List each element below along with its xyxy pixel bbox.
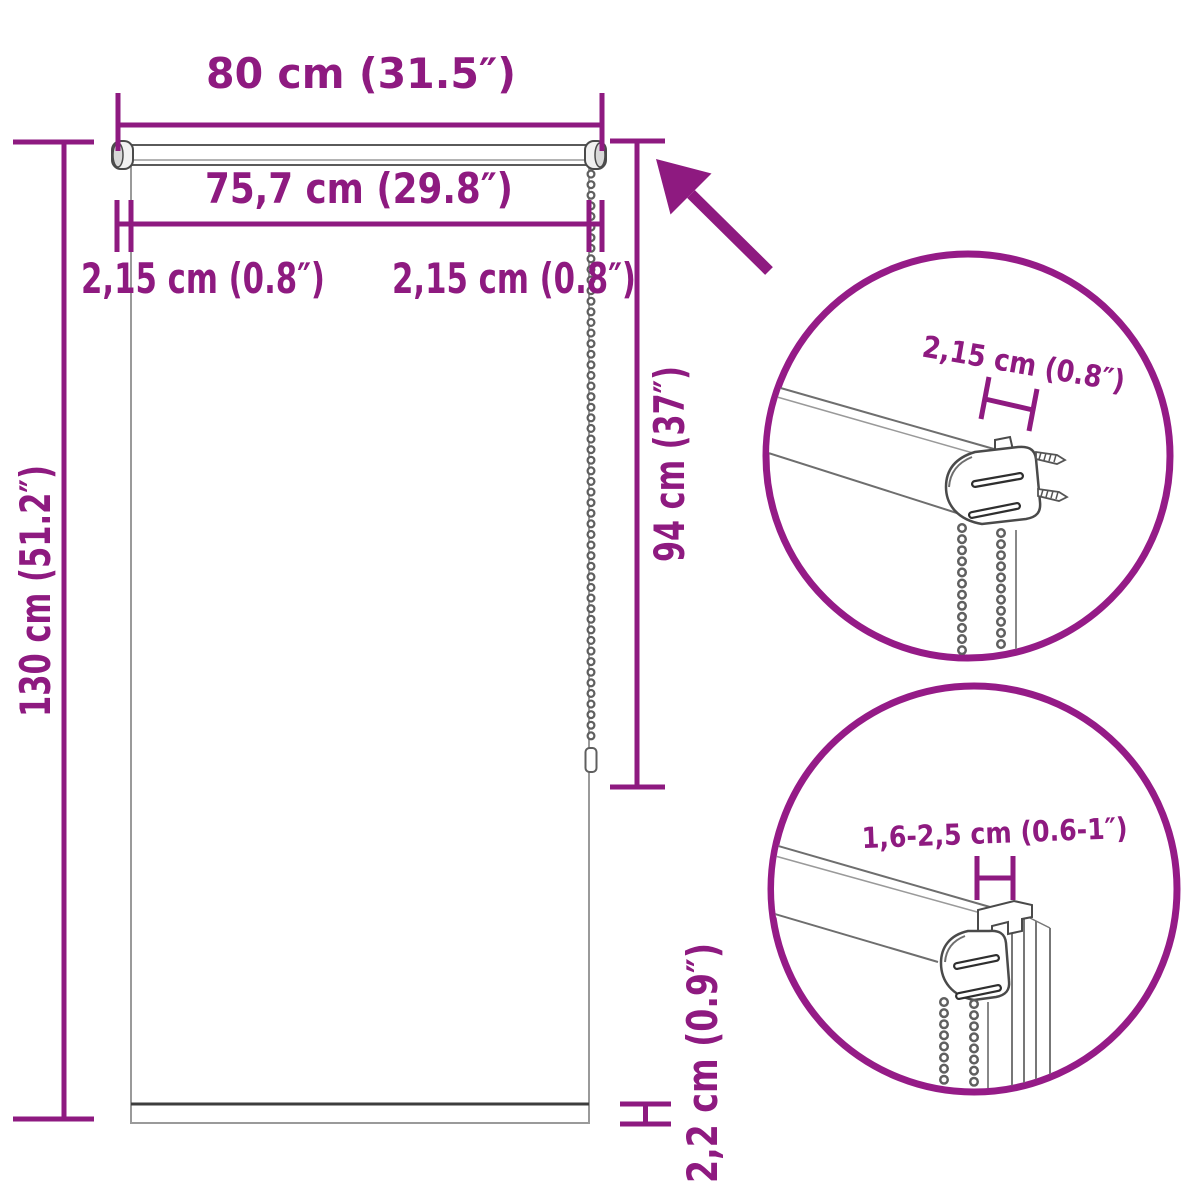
label-bottom-bar: 2,2 cm (0.9″) <box>678 943 727 1183</box>
label-height-total: 130 cm (51.2″) <box>11 465 60 717</box>
diagram-svg: 80 cm (31.5″) 75,7 cm (29.8″) 2,15 cm (0… <box>0 0 1200 1200</box>
label-width-outer: 80 cm (31.5″) <box>206 49 516 98</box>
label-height-drop: 94 cm (37″) <box>645 366 694 562</box>
dimension-bottom-bar: 2,2 cm (0.9″) <box>620 943 727 1183</box>
pull-chain-connector <box>586 748 597 772</box>
zoom-detail-arrow-icon <box>656 159 769 271</box>
blind-fabric <box>131 164 589 1123</box>
roller-tube <box>130 145 588 165</box>
dimension-width-outer: 80 cm (31.5″) <box>118 49 602 151</box>
label-width-inner: 75,7 cm (29.8″) <box>205 164 513 213</box>
roller-end-cap-left <box>112 141 133 169</box>
roller-blind-dimension-diagram: 80 cm (31.5″) 75,7 cm (29.8″) 2,15 cm (0… <box>0 0 1200 1200</box>
label-offset-right: 2,15 cm (0.8″) <box>392 254 636 303</box>
detail-circle-top: 2,15 cm (0.8″) <box>756 254 1170 658</box>
dimension-height-drop: 94 cm (37″) <box>610 141 694 787</box>
detail-circle-bottom: 1,6-2,5 cm (0.6-1″) <box>768 686 1177 1092</box>
arrow-shaft <box>691 194 769 271</box>
label-offset-left: 2,15 cm (0.8″) <box>81 254 325 303</box>
